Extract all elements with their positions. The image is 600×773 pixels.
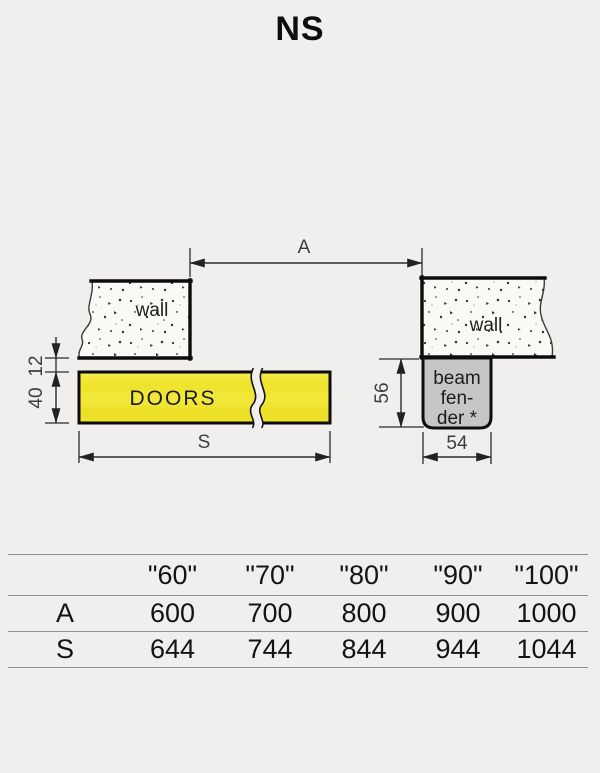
dimension-54: 54	[423, 432, 491, 464]
table-cell: 744	[223, 632, 317, 668]
dimension-diagram: A wall wall DOORS S	[0, 0, 600, 480]
size-table-container: "60" "70" "80" "90" "100" A 600 700 800 …	[8, 554, 588, 668]
table-col-header: "70"	[223, 555, 317, 596]
table-cell: 900	[411, 596, 505, 632]
table-row-label: A	[8, 596, 122, 632]
table-cell: 1000	[505, 596, 588, 632]
dimension-56: 56	[372, 359, 424, 427]
beam-fender-line1: beam	[433, 368, 481, 389]
table-row-s: S 644 744 844 944 1044	[8, 632, 588, 668]
dimension-12-40: 12 40	[26, 337, 69, 423]
door-bar: DOORS	[79, 367, 330, 429]
table-cell: 844	[317, 632, 411, 668]
table-cell: 600	[122, 596, 223, 632]
dim-40-label: 40	[26, 387, 47, 408]
wall-left-label: wall	[135, 300, 169, 321]
wall-right: wall	[421, 277, 554, 358]
table-cell: 644	[122, 632, 223, 668]
dim-56-label: 56	[372, 382, 393, 403]
dimension-s: S	[79, 431, 330, 463]
table-col-header: "90"	[411, 555, 505, 596]
dim-a-label: A	[298, 237, 311, 258]
dim-s-label: S	[198, 432, 211, 453]
table-corner-cell	[8, 555, 122, 596]
table-header-row: "60" "70" "80" "90" "100"	[8, 555, 588, 596]
table-cell: 800	[317, 596, 411, 632]
wall-left: wall	[79, 280, 191, 359]
size-table: "60" "70" "80" "90" "100" A 600 700 800 …	[8, 554, 588, 668]
table-row-label: S	[8, 632, 122, 668]
wall-right-label: wall	[469, 315, 503, 336]
table-col-header: "100"	[505, 555, 588, 596]
beam-fender-line2: fen-	[441, 388, 474, 409]
dimension-a: A	[190, 237, 422, 277]
table-cell: 700	[223, 596, 317, 632]
table-cell: 944	[411, 632, 505, 668]
wall-left-shape	[79, 281, 190, 358]
dim-54-label: 54	[446, 433, 468, 454]
table-cell: 1044	[505, 632, 588, 668]
beam-fender-line3: der *	[437, 408, 478, 429]
dim-12-label: 12	[26, 355, 47, 376]
table-col-header: "60"	[122, 555, 223, 596]
table-col-header: "80"	[317, 555, 411, 596]
table-row-a: A 600 700 800 900 1000	[8, 596, 588, 632]
beam-fender: beam fen- der *	[423, 358, 491, 429]
doors-label: DOORS	[129, 387, 216, 410]
